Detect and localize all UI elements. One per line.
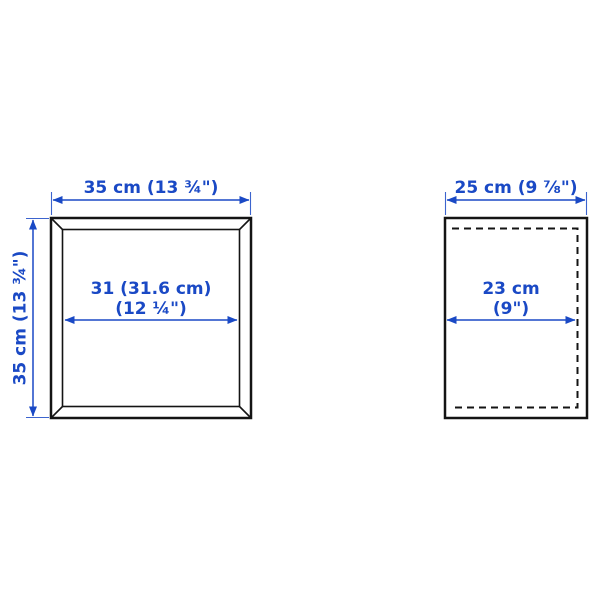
product-dimension-illustration: 35 cm (13 ¾") 35 cm (13 ¾") 31 (31.6 cm)… xyxy=(0,0,600,600)
front-height-dimension: 35 cm (13 ¾") xyxy=(11,219,50,418)
side-depth-label: 25 cm (9 ⅞") xyxy=(454,178,577,198)
side-depth-dimension: 25 cm (9 ⅞") xyxy=(446,178,587,215)
front-height-label: 35 cm (13 ¾") xyxy=(11,251,31,386)
front-width-dimension: 35 cm (13 ¾") xyxy=(52,178,251,215)
side-inner-depth-label-line2: (9") xyxy=(493,299,529,319)
front-inner-width-label-line2: (12 ¼") xyxy=(115,299,187,319)
front-view: 35 cm (13 ¾") 35 cm (13 ¾") 31 (31.6 cm)… xyxy=(11,178,252,418)
dimension-diagram-canvas: 35 cm (13 ¾") 35 cm (13 ¾") 31 (31.6 cm)… xyxy=(0,0,600,600)
front-inner-width-label-line1: 31 (31.6 cm) xyxy=(91,279,212,299)
side-view: 25 cm (9 ⅞") 23 cm (9") xyxy=(445,178,587,418)
side-inner-depth-label-line1: 23 cm xyxy=(482,279,539,299)
front-width-label: 35 cm (13 ¾") xyxy=(84,178,219,198)
